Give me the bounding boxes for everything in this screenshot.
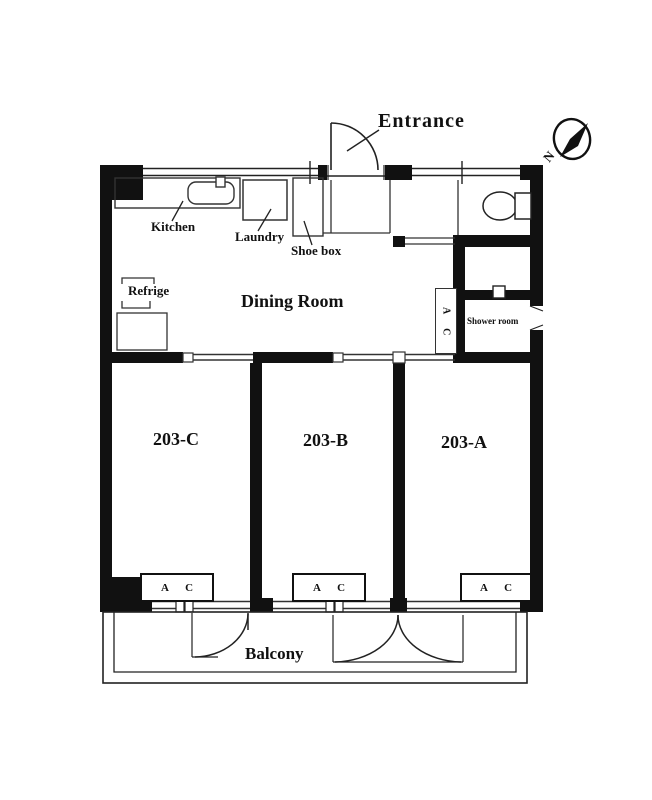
- ac-unit-203b: A C: [292, 573, 366, 602]
- floor-plan-linework: [0, 0, 652, 800]
- entrance-label: Entrance: [378, 111, 465, 131]
- shower-vent-square: [493, 286, 505, 298]
- balcony-label: Balcony: [245, 645, 304, 662]
- entrance-door-arc: [327, 123, 385, 180]
- kitchen-leader-line: [172, 201, 183, 221]
- ac-unit-203c: A C: [140, 573, 214, 602]
- balcony-door-arcs: [192, 613, 463, 662]
- compass-needle: [560, 123, 588, 157]
- laundry-box: [243, 180, 287, 220]
- entry-hall-lines: [323, 180, 390, 233]
- interior-walls: [112, 235, 543, 598]
- faucet-icon: [216, 177, 225, 187]
- room-label-203c: 203-C: [153, 430, 199, 448]
- dining-room-label: Dining Room: [241, 292, 344, 310]
- laundry-label: Laundry: [235, 230, 284, 243]
- refrige-label: Refrige: [128, 284, 169, 297]
- room-label-203a: 203-A: [441, 433, 487, 451]
- sink-icon: [188, 182, 234, 204]
- toilet-icon: [458, 180, 531, 235]
- shower-window-notch: [530, 306, 543, 330]
- room-label-203b: 203-B: [303, 431, 348, 449]
- shoe-box-label: Shoe box: [291, 244, 341, 257]
- compass-icon: [550, 116, 594, 163]
- shoebox-leader-line: [304, 221, 312, 245]
- floor-plan: Entrance N Kitchen Laundry Shoe box Refr…: [0, 0, 652, 800]
- kitchen-label: Kitchen: [151, 220, 195, 233]
- ac-unit-dining: A C: [435, 288, 457, 354]
- ac-unit-203a: A C: [460, 573, 532, 602]
- shower-room-label: Shower room: [467, 317, 518, 326]
- entrance-leader-line: [347, 130, 379, 151]
- shoe-box: [293, 178, 323, 236]
- hall-door-lines: [405, 238, 455, 244]
- dining-table-box: [117, 313, 167, 350]
